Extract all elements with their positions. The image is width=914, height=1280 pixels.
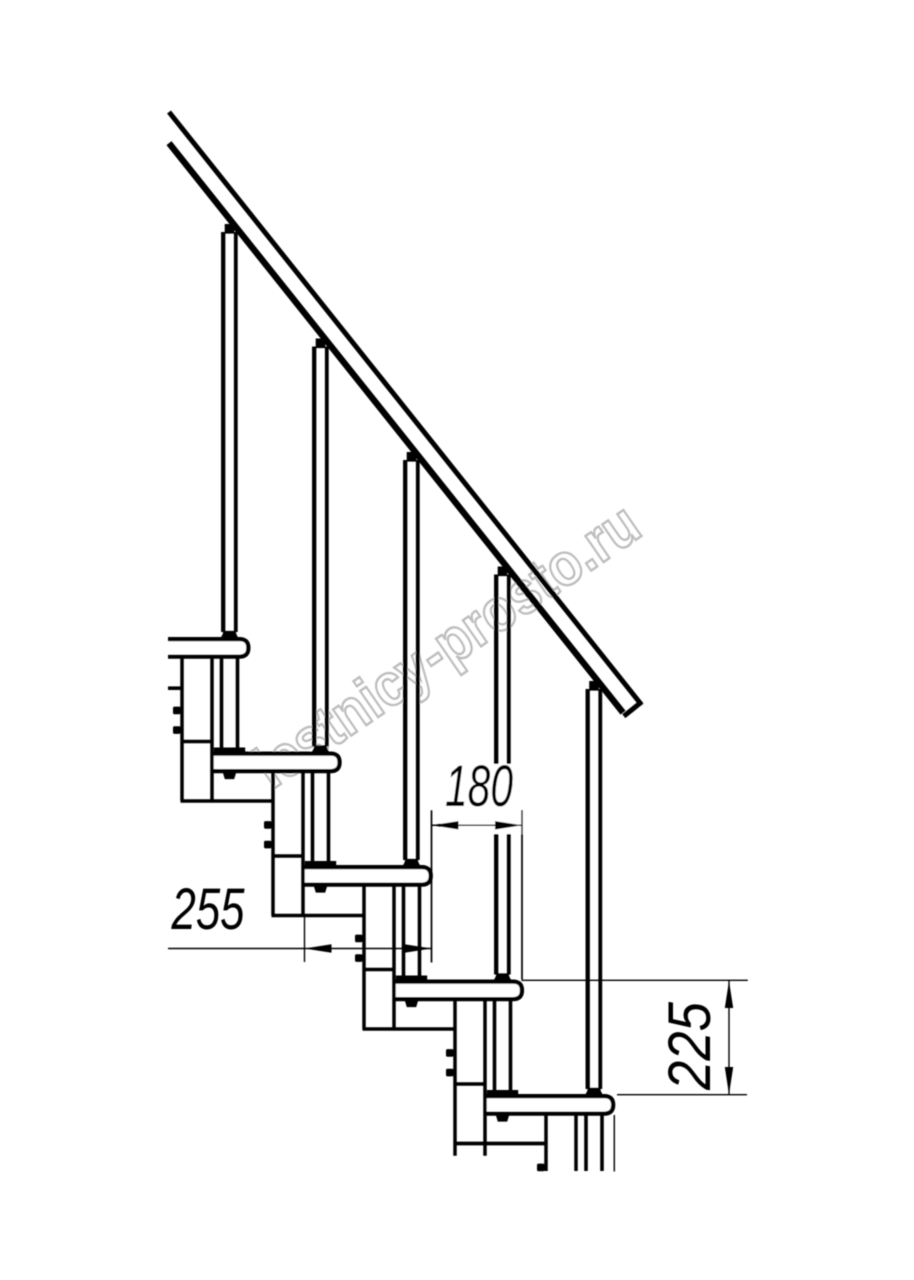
svg-text:225: 225 (656, 1001, 723, 1090)
svg-text:180: 180 (445, 754, 513, 819)
svg-text:255: 255 (171, 877, 245, 942)
